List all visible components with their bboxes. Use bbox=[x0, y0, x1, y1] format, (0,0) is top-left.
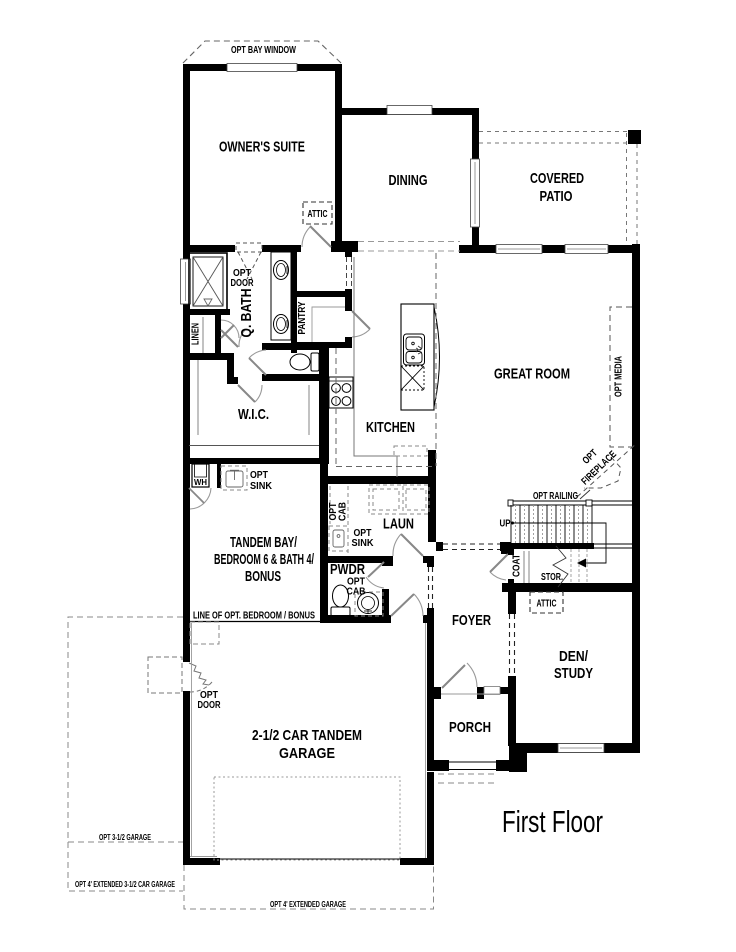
svg-text:2-1/2 CAR TANDEM: 2-1/2 CAR TANDEM bbox=[252, 727, 362, 744]
svg-text:GREAT ROOM: GREAT ROOM bbox=[494, 366, 570, 383]
svg-text:CAB: CAB bbox=[347, 587, 366, 598]
svg-text:WH: WH bbox=[194, 478, 207, 487]
svg-text:CAB: CAB bbox=[338, 502, 349, 521]
svg-text:OWNER'S SUITE: OWNER'S SUITE bbox=[219, 139, 305, 156]
svg-text:First Floor: First Floor bbox=[502, 804, 603, 839]
svg-text:DOOR: DOOR bbox=[198, 700, 222, 711]
svg-text:PORCH: PORCH bbox=[449, 719, 491, 736]
svg-text:KITCHEN: KITCHEN bbox=[366, 419, 415, 436]
svg-text:PWDR: PWDR bbox=[330, 561, 365, 578]
svg-text:DEN/: DEN/ bbox=[559, 648, 589, 665]
svg-text:BONUS: BONUS bbox=[245, 568, 281, 585]
svg-text:ATTIC: ATTIC bbox=[537, 599, 557, 610]
svg-text:LINEN: LINEN bbox=[191, 323, 202, 345]
svg-text:SINK: SINK bbox=[250, 481, 273, 492]
svg-text:OPT RAILING: OPT RAILING bbox=[533, 491, 578, 502]
svg-text:ATTIC: ATTIC bbox=[308, 209, 328, 220]
svg-text:OPT 3-1/2 GARAGE: OPT 3-1/2 GARAGE bbox=[99, 833, 151, 842]
svg-text:UP: UP bbox=[500, 519, 511, 530]
svg-text:OPT 4' EXTENDED 3-1/2 CAR GARA: OPT 4' EXTENDED 3-1/2 CAR GARAGE bbox=[75, 880, 175, 889]
svg-text:OPT MEDIA: OPT MEDIA bbox=[614, 356, 625, 397]
svg-text:LAUN: LAUN bbox=[383, 516, 414, 533]
svg-text:W.I.C.: W.I.C. bbox=[238, 406, 269, 423]
svg-text:OPT 4' EXTENDED GARAGE: OPT 4' EXTENDED GARAGE bbox=[270, 900, 346, 909]
svg-text:COAT: COAT bbox=[512, 554, 523, 577]
svg-text:DINING: DINING bbox=[389, 172, 428, 189]
svg-text:DOOR: DOOR bbox=[231, 278, 255, 289]
svg-text:OPT BAY WINDOW: OPT BAY WINDOW bbox=[231, 45, 296, 56]
svg-text:TANDEM BAY/: TANDEM BAY/ bbox=[230, 534, 298, 551]
svg-text:STOR.: STOR. bbox=[541, 572, 563, 583]
svg-text:BEDROOM 6 & BATH 4/: BEDROOM 6 & BATH 4/ bbox=[214, 551, 314, 568]
svg-text:GARAGE: GARAGE bbox=[279, 745, 335, 762]
svg-text:SINK: SINK bbox=[352, 538, 375, 549]
svg-text:LINE OF OPT. BEDROOM / BONUS: LINE OF OPT. BEDROOM / BONUS bbox=[193, 611, 315, 622]
svg-text:STUDY: STUDY bbox=[554, 665, 593, 682]
svg-text:OPT: OPT bbox=[250, 470, 268, 481]
svg-text:Q. BATH: Q. BATH bbox=[238, 289, 255, 338]
svg-text:PATIO: PATIO bbox=[540, 188, 573, 205]
svg-text:FOYER: FOYER bbox=[452, 612, 491, 629]
svg-text:PANTRY: PANTRY bbox=[297, 301, 308, 334]
svg-text:COVERED: COVERED bbox=[530, 170, 584, 187]
